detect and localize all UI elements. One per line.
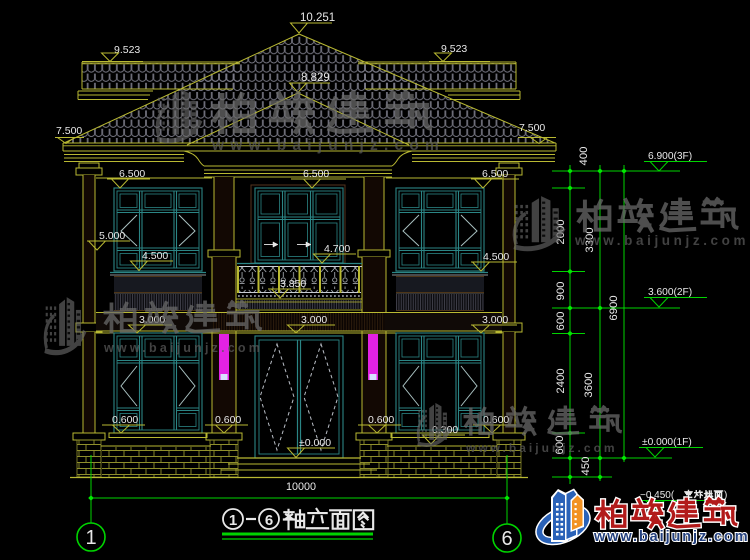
svg-text:www.baijunjz.com: www.baijunjz.com <box>574 233 749 248</box>
svg-text:6: 6 <box>265 512 273 529</box>
svg-text:3.000: 3.000 <box>301 314 327 326</box>
svg-text:www.baijunjz.com: www.baijunjz.com <box>593 529 750 545</box>
svg-text:6.500: 6.500 <box>119 168 145 180</box>
svg-text:−0.450(: −0.450( <box>640 490 675 501</box>
svg-text:±0.000(1F): ±0.000(1F) <box>642 437 692 448</box>
svg-text:3600: 3600 <box>583 372 595 397</box>
svg-text:1: 1 <box>85 527 96 549</box>
svg-text:8.829: 8.829 <box>301 72 330 84</box>
svg-text:400: 400 <box>578 147 590 166</box>
svg-text:www.baijunjz.com: www.baijunjz.com <box>211 137 445 154</box>
svg-text:7.500: 7.500 <box>519 122 545 134</box>
svg-text:6.500: 6.500 <box>482 168 508 180</box>
svg-text:www.baijunjz.com: www.baijunjz.com <box>465 441 618 455</box>
svg-text:4.500: 4.500 <box>142 250 168 262</box>
svg-text:6: 6 <box>501 528 512 550</box>
svg-text:www.baijunjz.com: www.baijunjz.com <box>103 341 263 355</box>
svg-text:0.600: 0.600 <box>368 414 394 426</box>
svg-text:0.600: 0.600 <box>215 414 241 426</box>
svg-text:5.000: 5.000 <box>99 230 125 242</box>
svg-text:0.600: 0.600 <box>112 414 138 426</box>
svg-text:4.700: 4.700 <box>324 243 350 255</box>
svg-text:10000: 10000 <box>286 481 316 493</box>
svg-text:6.500: 6.500 <box>303 168 329 180</box>
svg-text:3.000: 3.000 <box>482 314 508 326</box>
svg-text:7.500: 7.500 <box>56 125 82 137</box>
svg-text:4.500: 4.500 <box>483 251 509 263</box>
svg-text:3.600(2F): 3.600(2F) <box>648 287 692 298</box>
svg-text:10.251: 10.251 <box>300 12 335 24</box>
svg-text:450: 450 <box>580 457 592 476</box>
svg-text:600: 600 <box>555 312 567 331</box>
svg-text:3.850: 3.850 <box>280 278 306 290</box>
svg-text:1: 1 <box>229 512 237 529</box>
svg-text:900: 900 <box>555 282 567 301</box>
svg-text:±0.000: ±0.000 <box>299 437 331 449</box>
svg-text:2400: 2400 <box>555 368 567 393</box>
svg-text:6900: 6900 <box>608 295 620 320</box>
svg-text:6.900(3F): 6.900(3F) <box>648 151 692 162</box>
